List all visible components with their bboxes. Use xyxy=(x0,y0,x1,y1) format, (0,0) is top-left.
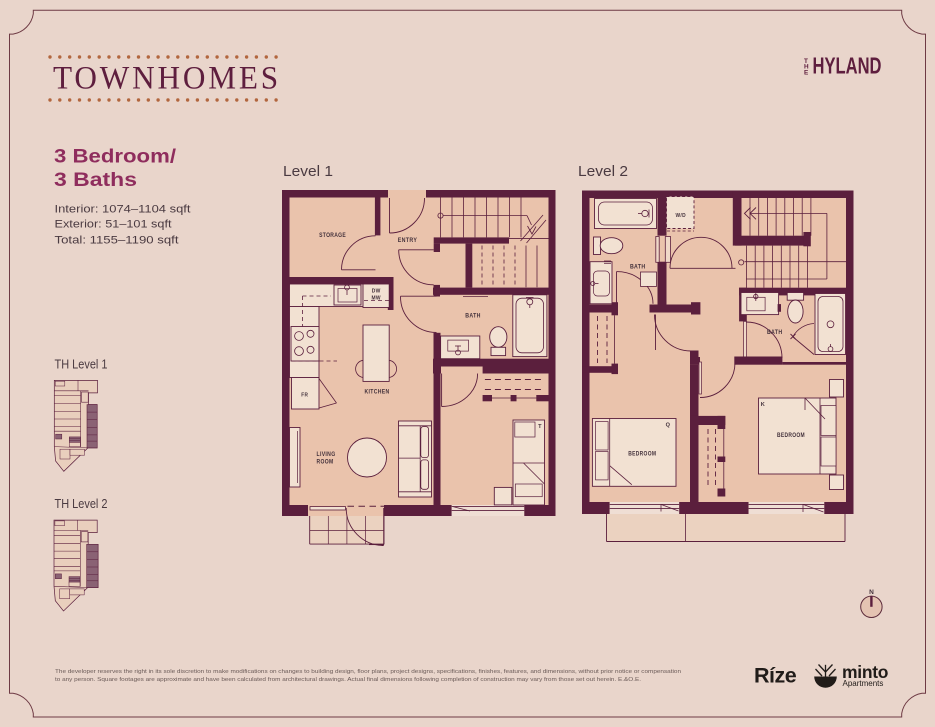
svg-text:Level 1: Level 1 xyxy=(283,164,333,180)
svg-text:Total: 1155–1190 sqft: Total: 1155–1190 sqft xyxy=(55,234,179,246)
svg-text:W/D: W/D xyxy=(675,213,686,219)
svg-text:T: T xyxy=(538,424,542,430)
svg-text:Apartments: Apartments xyxy=(843,679,884,688)
svg-text:Exterior: 51–101 sqft: Exterior: 51–101 sqft xyxy=(55,219,172,231)
svg-text:Q: Q xyxy=(666,423,671,429)
svg-text:The developer reserves the rig: The developer reserves the right in its … xyxy=(55,669,681,675)
svg-text:Ríze: Ríze xyxy=(754,663,797,687)
svg-text:HYLAND: HYLAND xyxy=(813,53,882,79)
svg-text:Level 2: Level 2 xyxy=(578,164,628,180)
svg-text:BATH: BATH xyxy=(465,313,481,320)
svg-text:FR: FR xyxy=(301,392,308,398)
svg-text:BEDROOM: BEDROOM xyxy=(628,451,656,458)
svg-text:3 Bedroom/: 3 Bedroom/ xyxy=(54,147,177,168)
svg-text:TOWNHOMES: TOWNHOMES xyxy=(53,61,281,97)
svg-text:Interior: 1074–1104 sqft: Interior: 1074–1104 sqft xyxy=(55,204,191,216)
svg-text:TH Level 1: TH Level 1 xyxy=(55,358,108,372)
svg-text:STORAGE: STORAGE xyxy=(319,232,346,239)
svg-text:TH Level 2: TH Level 2 xyxy=(55,497,108,511)
svg-text:E: E xyxy=(804,69,809,76)
svg-text:BATH: BATH xyxy=(630,264,646,271)
svg-text:KITCHEN: KITCHEN xyxy=(365,389,390,396)
svg-text:BATH: BATH xyxy=(767,329,783,336)
svg-text:ROOM: ROOM xyxy=(317,459,334,466)
svg-text:LIVING: LIVING xyxy=(317,451,336,458)
svg-text:N: N xyxy=(869,589,874,596)
svg-text:to any person. Square footages: to any person. Square footages are appro… xyxy=(55,677,641,683)
svg-text:DW: DW xyxy=(372,288,381,294)
svg-text:3 Baths: 3 Baths xyxy=(54,170,137,191)
svg-text:ENTRY: ENTRY xyxy=(398,237,418,244)
svg-text:K: K xyxy=(761,402,765,408)
svg-text:BEDROOM: BEDROOM xyxy=(777,432,805,439)
